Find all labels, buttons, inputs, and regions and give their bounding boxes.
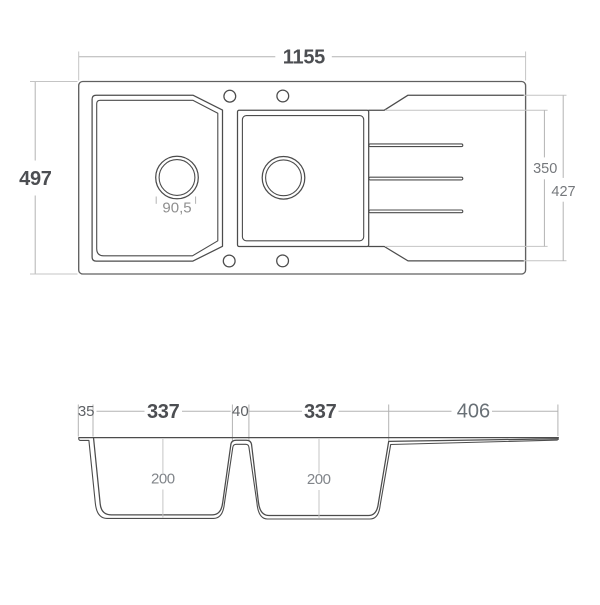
svg-text:427: 427 [551, 184, 575, 200]
svg-text:337: 337 [147, 401, 180, 423]
svg-text:350: 350 [533, 161, 557, 177]
svg-text:406: 406 [457, 401, 490, 423]
svg-text:35: 35 [78, 403, 95, 420]
svg-text:497: 497 [19, 168, 52, 190]
svg-text:337: 337 [304, 401, 337, 423]
svg-text:90,5: 90,5 [162, 199, 191, 216]
svg-text:40: 40 [232, 403, 249, 420]
svg-text:200: 200 [307, 471, 331, 488]
svg-text:1155: 1155 [283, 47, 325, 69]
svg-text:200: 200 [151, 471, 175, 488]
